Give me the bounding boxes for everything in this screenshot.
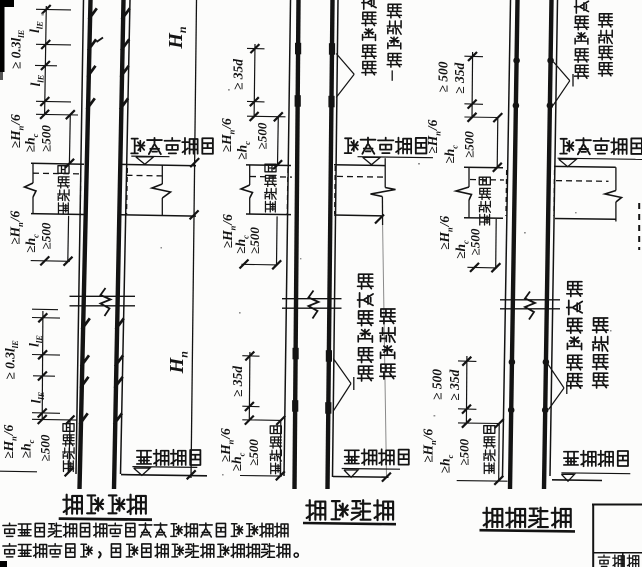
svg-text:≥ 35d: ≥ 35d [231, 59, 246, 90]
svg-text:/6: /6 [8, 114, 23, 126]
svg-text:≥500: ≥500 [38, 434, 53, 461]
svg-text:≥ 500: ≥ 500 [429, 369, 444, 400]
svg-text:≥ 35d: ≥ 35d [452, 63, 467, 94]
svg-text:≥500: ≥500 [38, 222, 53, 249]
svg-text:/6: /6 [8, 211, 23, 223]
svg-text:≥500: ≥500 [461, 131, 476, 158]
svg-text:≥500: ≥500 [456, 438, 471, 465]
svg-text:≥500: ≥500 [255, 122, 270, 149]
svg-text:/6: /6 [220, 214, 235, 226]
svg-text:≥500: ≥500 [246, 439, 261, 466]
svg-text:/6: /6 [420, 429, 435, 441]
svg-text:≥ 35d: ≥ 35d [230, 366, 245, 397]
svg-text:≥ 500: ≥ 500 [435, 61, 450, 92]
svg-text:/6: /6 [437, 216, 452, 228]
svg-text:/6: /6 [218, 428, 233, 440]
svg-text:≥500: ≥500 [468, 228, 483, 255]
svg-text:≥500: ≥500 [39, 125, 54, 152]
svg-text:/6: /6 [219, 118, 234, 130]
svg-text:/6: /6 [1, 425, 16, 437]
svg-text:≥500: ≥500 [247, 227, 262, 254]
svg-text:/6: /6 [425, 119, 440, 131]
svg-text:≥ 35d: ≥ 35d [447, 369, 462, 400]
